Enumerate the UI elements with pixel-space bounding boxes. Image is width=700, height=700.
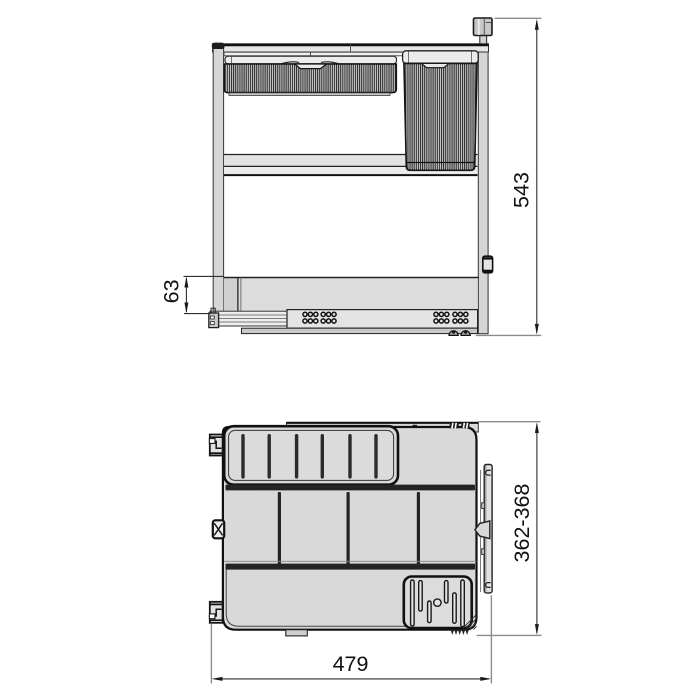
svg-text:479: 479 xyxy=(333,652,369,676)
svg-text:543: 543 xyxy=(510,172,534,208)
svg-text:63: 63 xyxy=(160,279,184,303)
svg-text:362-368: 362-368 xyxy=(510,484,534,563)
